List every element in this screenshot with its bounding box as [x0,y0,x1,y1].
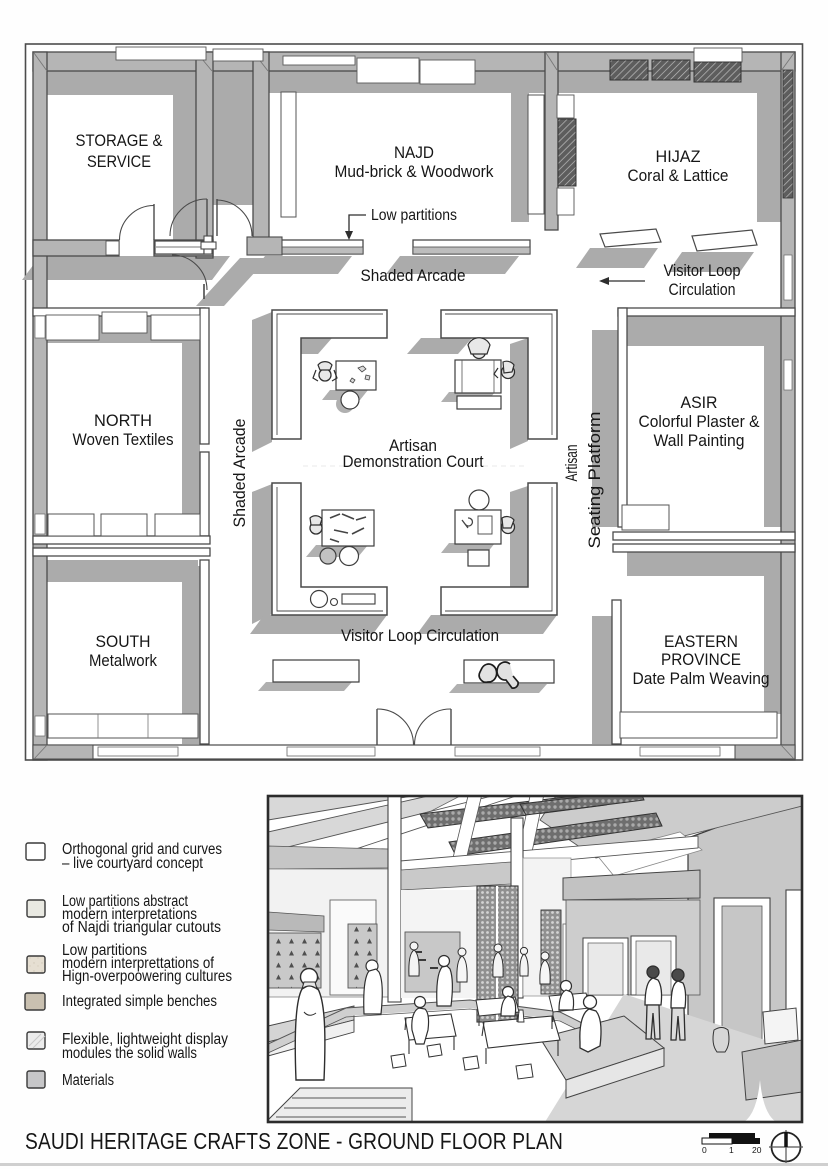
svg-text:– live courtyard concept: – live courtyard concept [62,855,204,872]
svg-text:of Najdi triangular cutouts: of Najdi triangular cutouts [62,919,221,936]
svg-text:Demonstration Court: Demonstration Court [343,452,484,471]
svg-text:NORTH: NORTH [94,411,152,430]
svg-text:Metalwork: Metalwork [89,651,157,670]
svg-text:STORAGE &: STORAGE & [76,131,164,150]
svg-text:Visitor Loop: Visitor Loop [664,261,741,280]
svg-text:Low partitions: Low partitions [371,207,457,224]
svg-text:SOUTH: SOUTH [96,632,151,651]
svg-text:Integrated simple benches: Integrated simple benches [62,993,217,1010]
svg-text:Shaded Arcade: Shaded Arcade [230,419,249,528]
svg-text:SERVICE: SERVICE [87,152,151,171]
svg-text:Artisan: Artisan [562,445,581,482]
svg-text:Woven Textiles: Woven Textiles [73,430,174,449]
svg-text:Colorful Plaster &: Colorful Plaster & [639,412,761,431]
svg-text:Date Palm Weaving: Date Palm Weaving [633,669,770,688]
svg-text:Wall Painting: Wall Painting [654,431,745,450]
svg-text:Circulation: Circulation [669,280,736,299]
svg-text:SAUDI HERITAGE CRAFTS ZONE - G: SAUDI HERITAGE CRAFTS ZONE - GROUND FLOO… [25,1128,563,1154]
svg-text:Visitor Loop Circulation: Visitor Loop Circulation [341,626,499,645]
svg-text:Seating Platform: Seating Platform [585,412,604,549]
svg-text:Shaded Arcade: Shaded Arcade [361,266,466,285]
svg-text:Hign-overpoowering cultures: Hign-overpoowering cultures [62,968,232,985]
svg-text:Coral & Lattice: Coral & Lattice [628,166,729,185]
svg-text:Mud-brick & Woodwork: Mud-brick & Woodwork [335,162,494,181]
svg-text:20: 20 [752,1145,762,1155]
svg-text:NAJD: NAJD [394,143,434,162]
svg-text:EASTERN: EASTERN [664,632,738,651]
svg-text:1: 1 [729,1145,734,1155]
svg-text:modules the solid walls: modules the solid walls [62,1045,197,1062]
svg-text:PROVINCE: PROVINCE [661,650,741,669]
svg-text:ASIR: ASIR [681,393,718,412]
svg-text:Materials: Materials [62,1072,114,1089]
svg-text:0: 0 [702,1145,707,1155]
svg-text:HIJAZ: HIJAZ [656,147,701,166]
